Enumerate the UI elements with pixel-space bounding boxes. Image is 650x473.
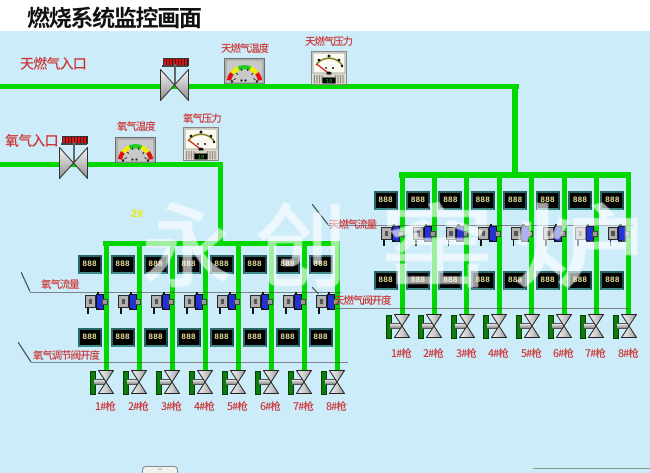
svg-text:18: 18 bbox=[198, 154, 205, 161]
svg-text:18: 18 bbox=[326, 78, 333, 85]
